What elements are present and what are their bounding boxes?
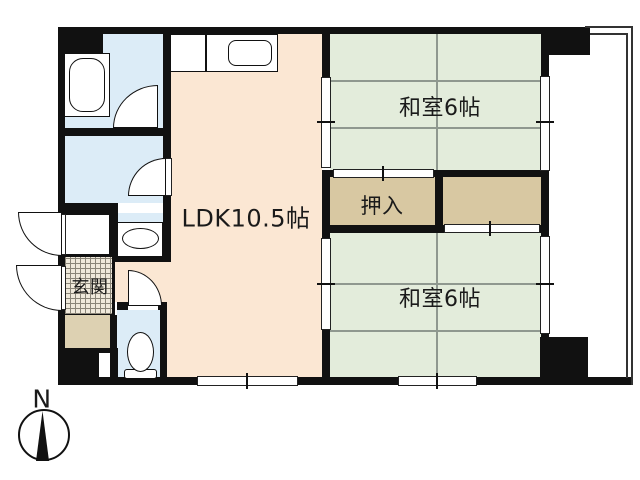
wall-right-segment — [541, 27, 549, 77]
kitchen-counter-divider — [205, 34, 207, 72]
window-tick — [246, 373, 248, 389]
balcony-line-top-inner — [590, 33, 628, 35]
balcony-line-right-inner — [626, 33, 628, 378]
window-washitsu-bottom — [540, 236, 550, 334]
window-tick — [536, 283, 554, 285]
hall-floor — [65, 315, 110, 348]
label-washitsu-top: 和室6帖 — [399, 90, 481, 122]
storage-box — [64, 213, 111, 256]
window-tick — [436, 373, 438, 389]
door-arc-storage — [18, 212, 62, 256]
window-tick — [317, 121, 335, 123]
bathtub — [69, 58, 105, 112]
window-washitsu-top — [540, 76, 550, 171]
wall-closet-divider — [435, 170, 443, 233]
label-ldk: LDK10.5帖 — [181, 199, 310, 234]
label-genkan: 玄関 — [72, 273, 109, 299]
compass: N — [10, 385, 80, 470]
door-arc-entrance — [16, 265, 62, 311]
sliding-door-closet-right — [444, 224, 540, 233]
window-tick — [536, 121, 554, 123]
wall-washroom-storage — [58, 203, 118, 213]
kitchen-sink — [228, 40, 272, 66]
wall-top-right-block — [549, 27, 590, 55]
wall-right-segment — [541, 333, 549, 381]
washbasin — [122, 228, 159, 249]
window-tick — [382, 166, 384, 181]
floor-plan-canvas: LDK10.5帖 和室6帖 和室6帖 押入 玄関 N — [0, 0, 640, 480]
wall-leftcol-ldk-segment — [163, 196, 171, 262]
toilet-bowl — [127, 332, 154, 372]
label-oshiire: 押入 — [361, 190, 404, 220]
pipe-space — [99, 353, 110, 377]
balcony-line-top-outer — [585, 26, 633, 28]
wall-hall-bar — [110, 315, 117, 348]
window-tick — [489, 221, 491, 236]
wall-ldk-tatami-segment — [322, 330, 330, 381]
window-tick — [317, 283, 335, 285]
wall-ldk-tatami-segment — [322, 27, 330, 77]
balcony-area — [550, 28, 630, 377]
wall-top-left-block — [58, 27, 103, 53]
closet-right-floor — [443, 177, 541, 225]
balcony-line-right-outer — [631, 26, 633, 385]
label-washitsu-bottom: 和室6帖 — [399, 281, 481, 313]
wall-toilet-right — [160, 302, 167, 377]
wall-bath-washroom — [58, 128, 170, 136]
